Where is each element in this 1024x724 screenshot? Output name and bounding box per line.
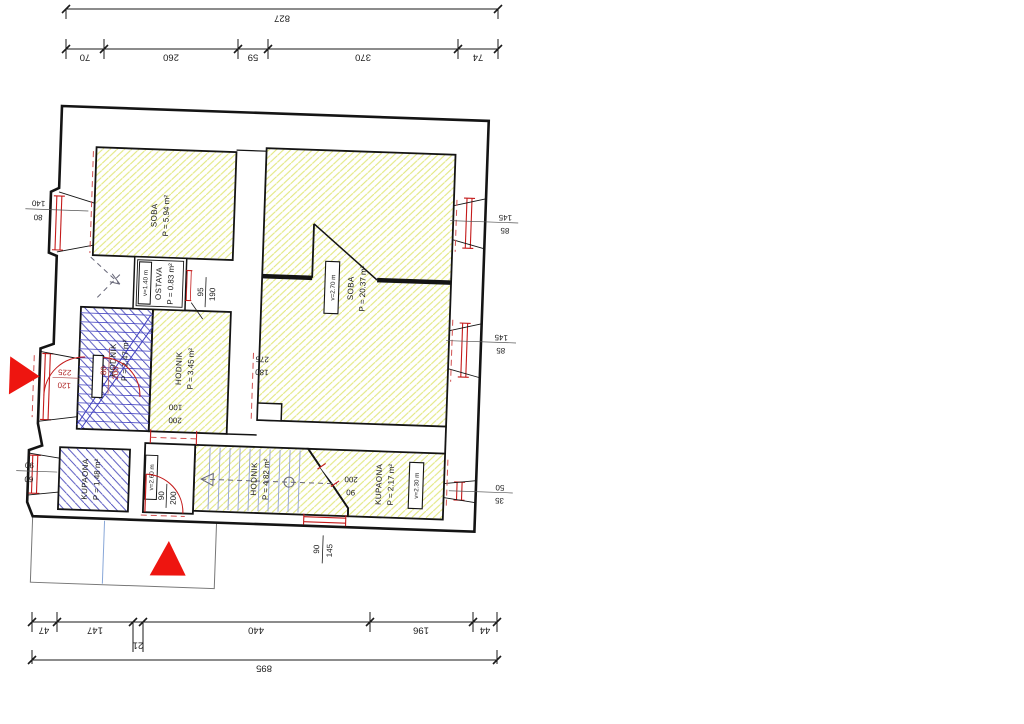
- dim-opening-soba2-2: 180: [254, 367, 268, 376]
- room-label-kupaona-1: KUPAONA: [80, 458, 90, 500]
- room-area-soba-2: P = 20.37 m²: [358, 265, 369, 312]
- dim-row-top-segments: [62, 39, 502, 59]
- dim-door-ostava-2: 190: [208, 287, 217, 301]
- room-label-kupaona-2: KUPAONA: [374, 463, 384, 505]
- dim-top-seg-0: 70: [80, 52, 91, 63]
- dim-bottom-seg-3: 440: [248, 625, 264, 636]
- floor-plan-svg: v=2.70 m v=1.40 m v=2.30 m v=2.60 m SOBA…: [0, 0, 1024, 724]
- dim-door-stairs-1: 80: [99, 365, 108, 375]
- marker-triangle-left: [9, 356, 40, 395]
- room-label-ostava: OSTAVA: [154, 267, 164, 301]
- room-area-hodnik-2: P = 3.45 m²: [186, 347, 196, 389]
- height-vestibule: v=2.60 m: [148, 464, 156, 490]
- dim-row-bottom-total: [28, 650, 501, 664]
- dim-win-left-bottom-2: 60: [24, 474, 34, 483]
- height-box-ostava: v=1.40 m: [138, 262, 151, 304]
- room-label-soba-1: SOBA: [149, 203, 159, 227]
- room-label-hodnik-3: HODNIK: [249, 462, 259, 496]
- dim-win-right-mid-1: 145: [494, 333, 508, 342]
- room-label-soba-2: SOBA: [346, 276, 356, 300]
- height-ostava: v=1.40 m: [142, 270, 150, 296]
- dim-bottom-seg-5: 44: [480, 625, 491, 636]
- dim-door-entry-1: 90: [157, 491, 166, 501]
- marker-triangle-bottom: [150, 540, 187, 576]
- dim-door-kupaona2-2: 90: [346, 488, 356, 497]
- dim-door-hodnik-2: 200: [168, 415, 182, 424]
- dim-door-ostava-1: 95: [196, 287, 205, 297]
- dim-bottom-seg-4: 196: [413, 625, 429, 636]
- height-kupaona-2: v=2.30 m: [413, 472, 421, 498]
- room-area-hodnik-3: P = 4.82 m²: [261, 458, 271, 500]
- dim-bottom-seg-0: 47: [39, 625, 50, 636]
- dim-win-right-bottom-1: 50: [495, 483, 505, 492]
- room-area-hodnik-1: P = 2.47 m²: [120, 339, 130, 381]
- dim-top-total: 827: [274, 13, 290, 24]
- porch-outline: [30, 516, 216, 588]
- dim-top-seg-4: 74: [473, 52, 484, 63]
- dim-win-right-top-1: 145: [498, 213, 512, 222]
- dim-door-left-mid-1: 225: [57, 368, 71, 377]
- room-area-ostava: P = 0.83 m²: [166, 263, 176, 305]
- dim-door-left-mid-2: 120: [57, 380, 71, 389]
- dim-top-seg-1: 260: [163, 52, 179, 63]
- dim-bottom-total: 895: [256, 663, 272, 674]
- dim-win-right-mid-2: 85: [496, 346, 506, 355]
- height-box-kupaona-2: v=2.30 m: [408, 462, 424, 508]
- dim-door-stairs-2: 200: [111, 366, 120, 380]
- dim-win-bottom-2: 145: [325, 543, 334, 557]
- dim-door-kupaona2-1: 200: [344, 475, 358, 484]
- dim-win-right-top-2: 85: [500, 226, 510, 235]
- room-soba-2: [257, 148, 455, 426]
- room-area-kupaona-2: P = 2.17 m²: [386, 464, 396, 506]
- dim-win-left-bottom-1: 90: [24, 460, 34, 469]
- dim-top-seg-2: 59: [248, 52, 259, 63]
- dim-win-left-top-2: 80: [33, 213, 43, 222]
- room-label-hodnik-2: HODNIK: [174, 351, 184, 385]
- room-area-kupaona-1: P = 1.48 m²: [92, 458, 102, 500]
- dim-door-entry-2: 200: [169, 491, 178, 505]
- dim-win-bottom-1: 90: [312, 544, 321, 554]
- dim-bottom-seg-2: 21: [133, 640, 144, 651]
- height-soba-2: v=2.70 m: [329, 274, 337, 300]
- dim-win-right-bottom-2: 35: [494, 496, 504, 505]
- dim-bottom-seg-1: 147: [87, 625, 103, 636]
- dim-win-left-top-1: 140: [31, 198, 45, 207]
- drawing-sheet: v=2.70 m v=1.40 m v=2.30 m v=2.60 m SOBA…: [0, 0, 1024, 724]
- dim-opening-soba2-1: 275: [255, 354, 269, 363]
- room-area-soba-1: P = 5.94 m²: [161, 195, 171, 237]
- building-plan: v=2.70 m v=1.40 m v=2.30 m v=2.60 m SOBA…: [2, 104, 525, 598]
- dim-top-seg-3: 370: [355, 52, 371, 63]
- height-box-soba-2: v=2.70 m: [324, 261, 340, 313]
- dim-door-hodnik-1: 100: [168, 402, 182, 411]
